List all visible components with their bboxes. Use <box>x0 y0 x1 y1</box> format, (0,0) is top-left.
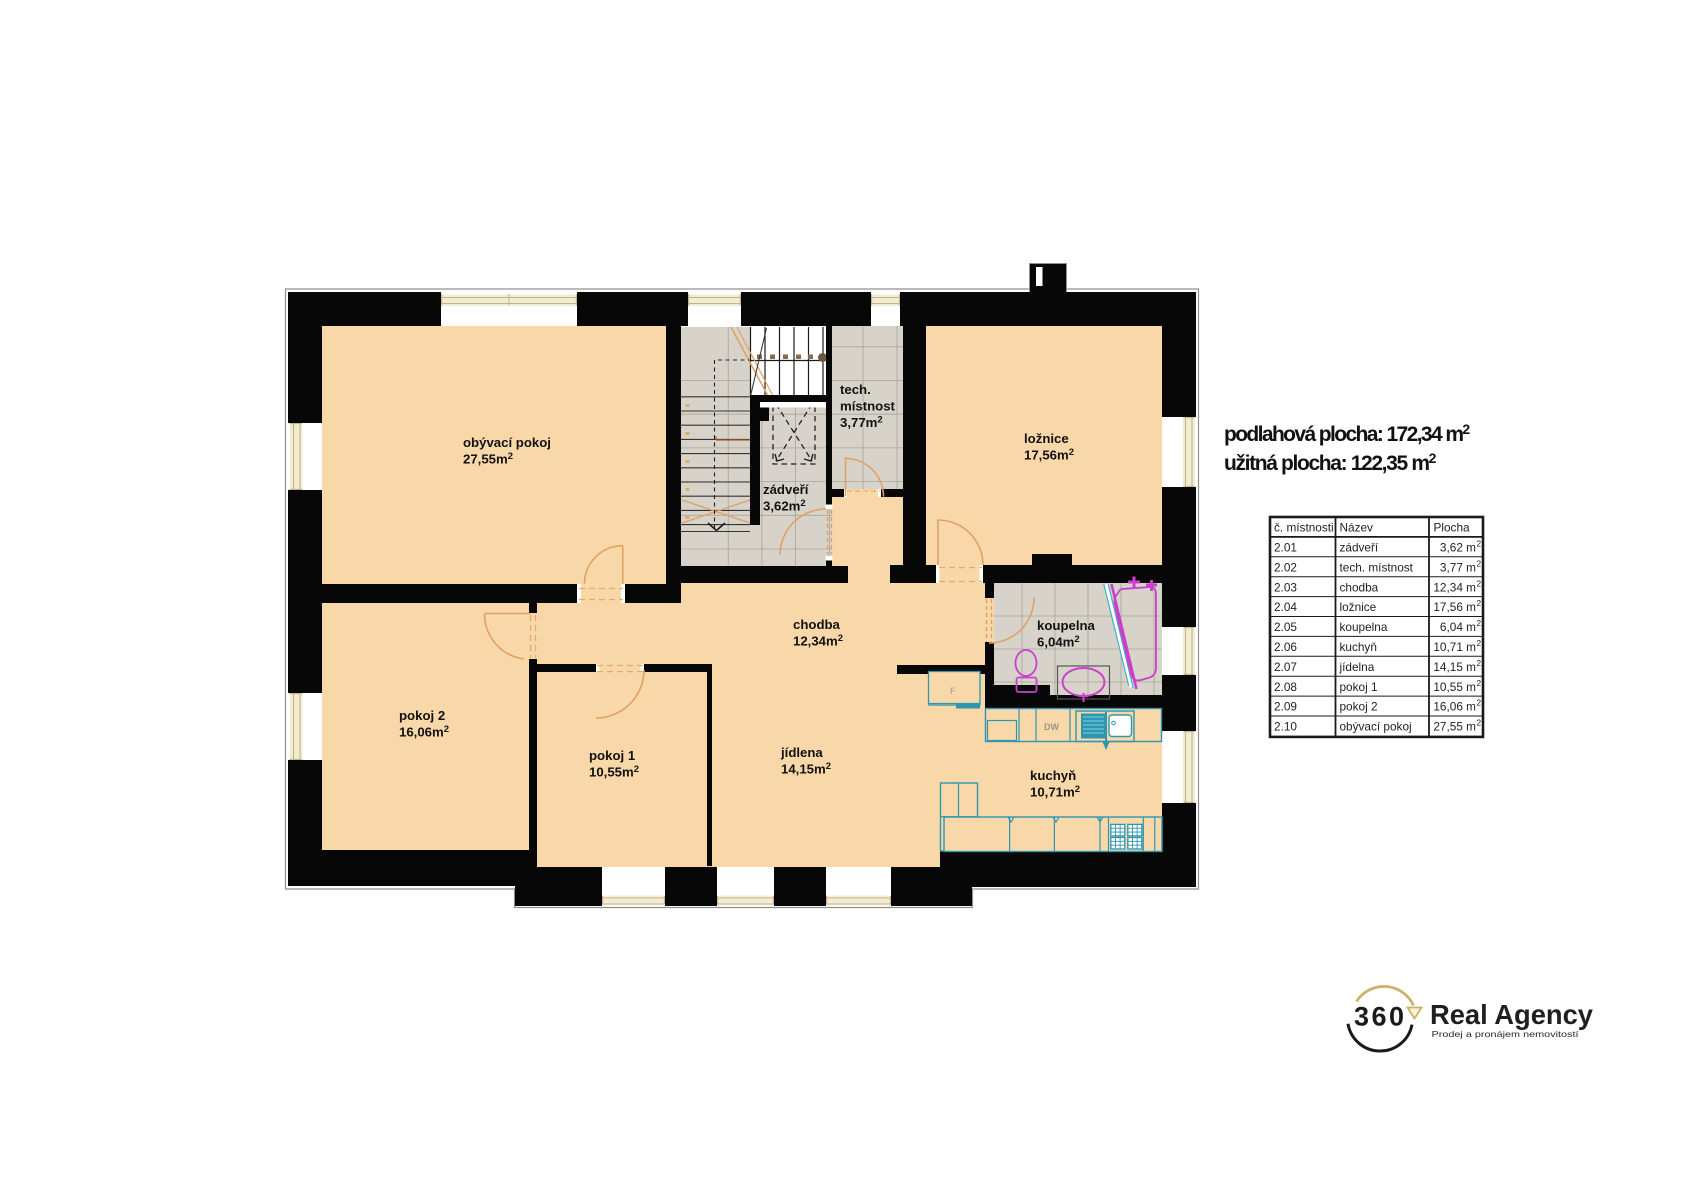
svg-text:místnost: místnost <box>840 398 896 413</box>
svg-text:3,62 m: 3,62 m <box>1440 541 1476 555</box>
svg-text:10,71 m: 10,71 m <box>1433 640 1476 654</box>
svg-text:2.07: 2.07 <box>1274 660 1297 674</box>
svg-text:obývací pokoj: obývací pokoj <box>1340 720 1412 734</box>
svg-text:3,77m2: 3,77m2 <box>840 414 883 430</box>
svg-text:kuchyň: kuchyň <box>1340 640 1377 654</box>
svg-text:10,71m2: 10,71m2 <box>1030 784 1080 800</box>
svg-text:tech. místnost: tech. místnost <box>1340 560 1414 574</box>
svg-text:2.08: 2.08 <box>1274 680 1297 694</box>
svg-text:Real Agency: Real Agency <box>1430 999 1593 1030</box>
svg-text:14,15m2: 14,15m2 <box>781 761 831 777</box>
svg-text:16,06 m: 16,06 m <box>1433 700 1476 714</box>
svg-text:Prodej a pronájem nemovitostí: Prodej a pronájem nemovitostí <box>1432 1029 1580 1039</box>
svg-text:10,55m2: 10,55m2 <box>589 764 639 780</box>
svg-text:Název: Název <box>1340 521 1374 535</box>
svg-text:12,34m2: 12,34m2 <box>793 633 843 649</box>
svg-text:2.03: 2.03 <box>1274 580 1297 594</box>
svg-text:pokoj 1: pokoj 1 <box>589 748 635 763</box>
svg-text:2: 2 <box>1477 578 1482 588</box>
svg-text:jídlena: jídlena <box>780 745 823 760</box>
svg-text:ložnice: ložnice <box>1024 431 1069 446</box>
svg-text:10,55 m: 10,55 m <box>1433 680 1476 694</box>
svg-text:14,15 m: 14,15 m <box>1433 660 1476 674</box>
svg-text:Plocha: Plocha <box>1434 521 1471 535</box>
svg-text:6,04m2: 6,04m2 <box>1037 634 1080 650</box>
svg-text:2: 2 <box>1477 618 1482 628</box>
svg-text:2.09: 2.09 <box>1274 700 1297 714</box>
svg-text:2: 2 <box>1477 678 1482 688</box>
svg-text:koupelna: koupelna <box>1037 618 1096 633</box>
svg-text:2.01: 2.01 <box>1274 541 1297 555</box>
svg-text:2.04: 2.04 <box>1274 600 1297 614</box>
svg-text:2.10: 2.10 <box>1274 720 1297 734</box>
svg-text:2: 2 <box>1477 638 1482 648</box>
svg-text:DW: DW <box>1044 722 1059 732</box>
svg-text:2: 2 <box>1477 539 1482 549</box>
svg-text:obývací pokoj: obývací pokoj <box>463 435 551 450</box>
svg-text:pokoj 2: pokoj 2 <box>1340 700 1378 714</box>
svg-text:17,56 m: 17,56 m <box>1433 600 1476 614</box>
svg-text:27,55m2: 27,55m2 <box>463 451 513 467</box>
svg-text:pokoj 1: pokoj 1 <box>1340 680 1378 694</box>
svg-text:2.02: 2.02 <box>1274 560 1297 574</box>
svg-text:pokoj 2: pokoj 2 <box>399 708 445 723</box>
svg-text:chodba: chodba <box>793 617 841 632</box>
svg-text:3,62m2: 3,62m2 <box>763 498 806 514</box>
svg-text:tech.: tech. <box>840 382 871 397</box>
svg-text:č. místnosti: č. místnosti <box>1274 521 1334 535</box>
svg-text:16,06m2: 16,06m2 <box>399 724 449 740</box>
svg-text:12,34 m: 12,34 m <box>1433 580 1476 594</box>
svg-text:ložnice: ložnice <box>1340 600 1377 614</box>
svg-text:3,77 m: 3,77 m <box>1440 560 1476 574</box>
svg-text:podlahová plocha: 172,34 m2: podlahová plocha: 172,34 m2 <box>1224 421 1470 446</box>
svg-text:6,04 m: 6,04 m <box>1440 620 1476 634</box>
svg-text:2.06: 2.06 <box>1274 640 1297 654</box>
svg-text:17,56m2: 17,56m2 <box>1024 447 1074 463</box>
svg-text:2: 2 <box>1477 658 1482 668</box>
svg-text:koupelna: koupelna <box>1340 620 1388 634</box>
svg-text:kuchyň: kuchyň <box>1030 768 1076 783</box>
svg-text:27,55 m: 27,55 m <box>1433 720 1476 734</box>
svg-text:zádveří: zádveří <box>763 482 810 497</box>
svg-text:užitná plocha: 122,35 m2: užitná plocha: 122,35 m2 <box>1224 450 1437 475</box>
svg-text:chodba: chodba <box>1340 580 1379 594</box>
svg-text:2: 2 <box>1477 718 1482 728</box>
svg-text:2.05: 2.05 <box>1274 620 1297 634</box>
svg-text:2: 2 <box>1477 558 1482 568</box>
svg-text:2: 2 <box>1477 598 1482 608</box>
svg-text:jídelna: jídelna <box>1339 660 1375 674</box>
svg-text:360: 360 <box>1354 1002 1404 1032</box>
svg-text:F: F <box>950 686 956 696</box>
svg-text:zádveří: zádveří <box>1340 541 1379 555</box>
svg-text:2: 2 <box>1477 698 1482 708</box>
